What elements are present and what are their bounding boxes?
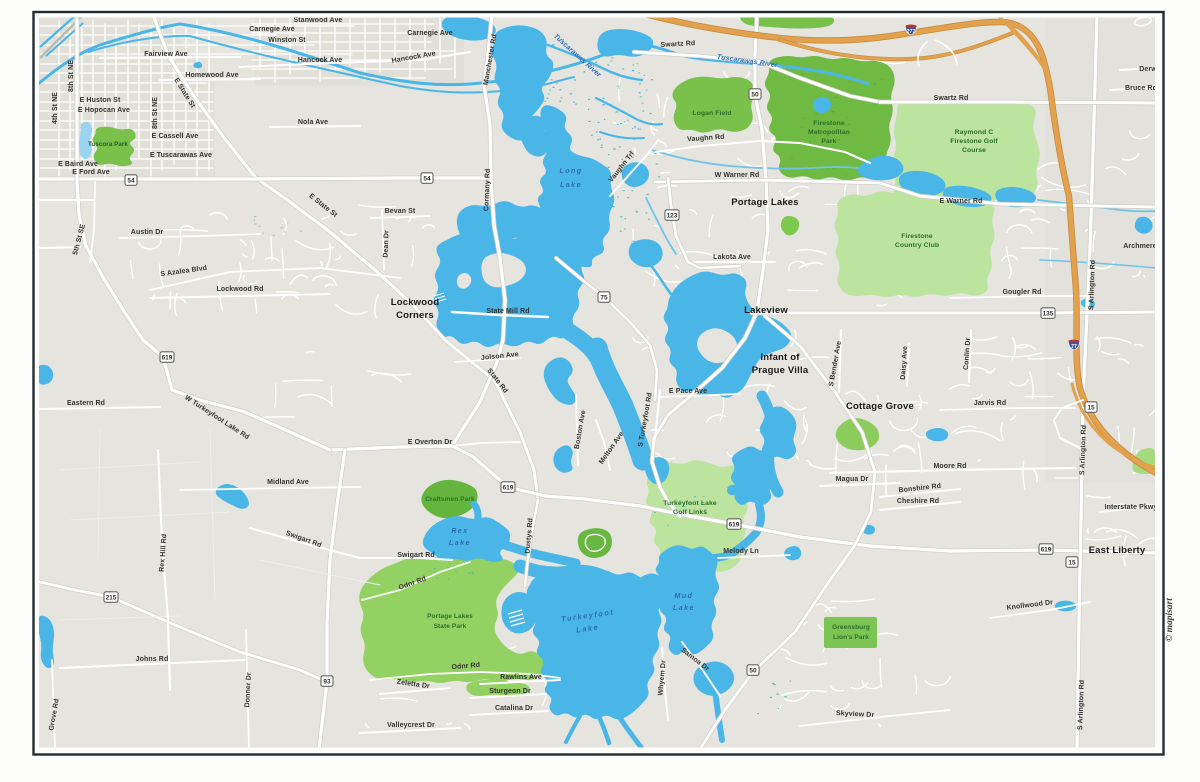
svg-text:Firestone: Firestone <box>813 120 845 127</box>
svg-text:77: 77 <box>1071 344 1077 350</box>
svg-text:Gougler Rd: Gougler Rd <box>1002 289 1041 296</box>
svg-text:Country Club: Country Club <box>895 242 939 249</box>
svg-text:State Park: State Park <box>434 623 467 630</box>
svg-text:State Mill Rd: State Mill Rd <box>486 308 529 315</box>
svg-text:93: 93 <box>323 678 331 685</box>
svg-text:Portage Lakes: Portage Lakes <box>427 613 473 620</box>
svg-text:E Ford Ave: E Ford Ave <box>72 169 109 176</box>
svg-text:Lake: Lake <box>449 540 471 547</box>
svg-text:Lion's Park: Lion's Park <box>833 634 869 641</box>
svg-text:Hancock Ave: Hancock Ave <box>298 57 343 64</box>
svg-text:Lockwood Rd: Lockwood Rd <box>217 286 264 293</box>
svg-text:50: 50 <box>751 91 759 98</box>
svg-text:E Tuscarawas Ave: E Tuscarawas Ave <box>150 152 212 159</box>
svg-text:Eastern Rd: Eastern Rd <box>67 400 105 407</box>
svg-text:15: 15 <box>1068 559 1076 566</box>
svg-text:Derw: Derw <box>1139 66 1157 73</box>
svg-text:619: 619 <box>162 354 173 361</box>
svg-text:Corners: Corners <box>396 310 434 321</box>
svg-text:54: 54 <box>127 177 135 184</box>
svg-text:Park: Park <box>821 138 836 145</box>
svg-text:Carnegie Ave: Carnegie Ave <box>407 30 452 37</box>
svg-text:Midland Ave: Midland Ave <box>267 479 309 486</box>
svg-text:Interstate Pkwy: Interstate Pkwy <box>1105 504 1158 511</box>
svg-text:Mud: Mud <box>675 593 694 600</box>
svg-text:Long: Long <box>559 168 582 175</box>
svg-text:Lakota Ave: Lakota Ave <box>713 254 751 261</box>
svg-text:E Hopocan Ave: E Hopocan Ave <box>78 107 130 114</box>
svg-text:50: 50 <box>749 667 757 674</box>
svg-text:Dean Dr: Dean Dr <box>383 230 391 258</box>
svg-text:Lakeview: Lakeview <box>744 305 788 316</box>
svg-text:Portage Lakes: Portage Lakes <box>731 197 799 208</box>
svg-text:Cottage Grove: Cottage Grove <box>846 401 914 412</box>
svg-text:Winston St: Winston St <box>268 37 306 44</box>
svg-text:Melody Ln: Melody Ln <box>723 548 759 555</box>
svg-text:Magua Dr: Magua Dr <box>836 476 869 483</box>
svg-text:8th St NE: 8th St NE <box>152 97 159 129</box>
svg-text:Sturgeon Dr: Sturgeon Dr <box>489 688 531 695</box>
svg-text:Bruce Rd: Bruce Rd <box>1125 85 1157 92</box>
svg-text:8th St NE: 8th St NE <box>68 60 75 92</box>
svg-text:Cheshire Rd: Cheshire Rd <box>897 498 939 505</box>
svg-text:Nola Ave: Nola Ave <box>298 119 328 126</box>
svg-text:Catalina Dr: Catalina Dr <box>495 705 533 712</box>
svg-text:Prague Villa: Prague Villa <box>752 365 809 376</box>
svg-text:Carnegie Ave: Carnegie Ave <box>249 26 294 33</box>
svg-text:277: 277 <box>907 29 916 35</box>
svg-text:Johns Rd: Johns Rd <box>136 656 169 663</box>
svg-text:Cormany Rd: Cormany Rd <box>483 169 491 212</box>
svg-text:619: 619 <box>729 521 740 528</box>
svg-text:Swigart Rd: Swigart Rd <box>397 552 435 559</box>
svg-text:Rex: Rex <box>451 528 468 535</box>
svg-text:Moore Rd: Moore Rd <box>933 463 966 470</box>
svg-text:Archmere: Archmere <box>1123 243 1156 250</box>
svg-text:W Warner Rd: W Warner Rd <box>715 172 760 179</box>
svg-text:E Cassell Ave: E Cassell Ave <box>152 133 199 140</box>
svg-text:Golf Links: Golf Links <box>673 509 707 516</box>
svg-text:Course: Course <box>962 147 986 154</box>
svg-text:75: 75 <box>600 294 608 301</box>
svg-text:Bevan St: Bevan St <box>385 208 416 215</box>
svg-text:E Pace Ave: E Pace Ave <box>669 388 707 395</box>
svg-text:Firestone Golf: Firestone Golf <box>950 138 998 145</box>
svg-text:619: 619 <box>503 484 514 491</box>
svg-text:© mapisart: © mapisart <box>1164 598 1175 642</box>
svg-text:Rawlins Ave: Rawlins Ave <box>500 674 542 681</box>
svg-text:Tuscora Park: Tuscora Park <box>88 141 128 148</box>
svg-text:Fairview Ave: Fairview Ave <box>144 51 187 58</box>
svg-text:Jarvis Rd: Jarvis Rd <box>974 400 1006 407</box>
svg-text:215: 215 <box>106 594 117 601</box>
svg-text:E Warner Rd: E Warner Rd <box>940 198 983 205</box>
svg-text:Logan Field: Logan Field <box>692 110 731 117</box>
svg-text:Raymond C: Raymond C <box>955 129 994 136</box>
svg-text:Austin Dr: Austin Dr <box>131 229 164 236</box>
svg-text:E Huston St: E Huston St <box>80 97 121 104</box>
svg-text:Firestone: Firestone <box>901 233 933 240</box>
svg-text:Lake: Lake <box>673 605 695 612</box>
svg-text:Lake: Lake <box>560 182 582 189</box>
svg-text:East Liberty: East Liberty <box>1089 545 1146 556</box>
svg-text:619: 619 <box>1041 546 1052 553</box>
svg-text:E Baird Ave: E Baird Ave <box>58 161 98 168</box>
svg-text:Valleycrest Dr: Valleycrest Dr <box>387 722 435 729</box>
svg-text:15: 15 <box>1087 404 1095 411</box>
svg-text:E Overton Dr: E Overton Dr <box>408 439 453 446</box>
svg-text:123: 123 <box>667 212 678 219</box>
svg-text:Infant of: Infant of <box>760 352 800 363</box>
svg-text:Craftsmen Park: Craftsmen Park <box>425 496 475 503</box>
svg-text:Stanwood Ave: Stanwood Ave <box>294 17 343 24</box>
svg-text:54: 54 <box>423 175 431 182</box>
svg-text:Greensburg: Greensburg <box>832 624 870 631</box>
svg-text:Lockwood: Lockwood <box>391 297 440 308</box>
svg-text:Metropolitan: Metropolitan <box>808 129 850 136</box>
svg-text:Turkeyfoot Lake: Turkeyfoot Lake <box>663 500 717 507</box>
svg-text:4th St NE: 4th St NE <box>52 92 59 124</box>
svg-text:Swartz Rd: Swartz Rd <box>934 95 969 102</box>
svg-text:Homewood Ave: Homewood Ave <box>185 72 238 79</box>
svg-text:135: 135 <box>1043 310 1054 317</box>
